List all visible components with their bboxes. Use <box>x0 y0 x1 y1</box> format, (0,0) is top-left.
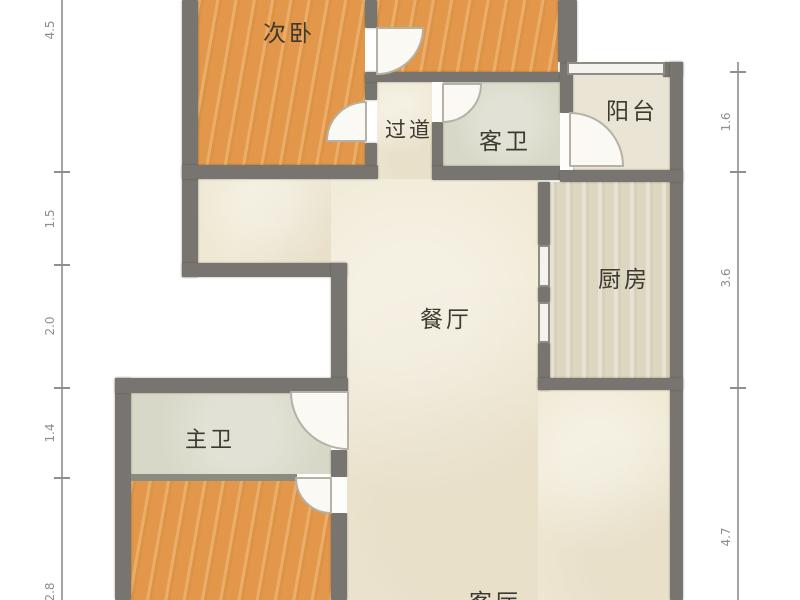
door-arc-master-bedroom <box>296 478 331 513</box>
dim-tick-right-3 <box>730 387 746 389</box>
dim-tick-left-4 <box>54 477 70 479</box>
door-arc-top-right-bedroom <box>377 28 423 74</box>
dim-label-left-1-5: 1.5 <box>43 202 57 236</box>
dimension-line-left <box>61 0 63 600</box>
dim-tick-right-1 <box>730 71 746 73</box>
room-label-guest-bathroom: 客卫 <box>479 122 531 156</box>
dim-label-right-1-6: 1.6 <box>719 105 733 139</box>
room-label-living-room: 客厅 <box>469 583 521 600</box>
room-label-kitchen: 厨房 <box>598 260 650 294</box>
door-arc-secondary-bedroom <box>327 102 366 141</box>
door-arc-master-bathroom <box>291 392 348 449</box>
room-label-hallway: 过道 <box>385 114 433 144</box>
room-label-master-bathroom: 主卫 <box>185 422 235 454</box>
room-label-dining-room: 餐厅 <box>420 300 472 334</box>
dim-tick-left-2 <box>54 264 70 266</box>
dim-tick-right-2 <box>730 171 746 173</box>
door-arc-guest-bathroom <box>443 84 481 122</box>
dim-label-left-2-8: 2.8 <box>43 575 57 600</box>
dim-label-right-4-7: 4.7 <box>719 520 733 554</box>
room-label-secondary-bedroom: 次卧 <box>263 14 315 48</box>
dim-tick-left-1 <box>54 171 70 173</box>
dim-label-left-4-5: 4.5 <box>43 13 57 47</box>
dim-tick-left-3 <box>54 387 70 389</box>
door-arcs-layer <box>0 0 800 600</box>
dimension-line-right <box>737 62 739 600</box>
dim-label-right-3-6: 3.6 <box>719 261 733 295</box>
dim-label-left-1-4: 1.4 <box>43 416 57 450</box>
floor-plan: 次卧 过道 客卫 阳台 厨房 餐厅 主卫 客厅 4.5 1.5 2.0 1.4 … <box>0 0 800 600</box>
room-label-balcony: 阳台 <box>606 92 658 126</box>
dim-label-left-2-0: 2.0 <box>43 309 57 343</box>
